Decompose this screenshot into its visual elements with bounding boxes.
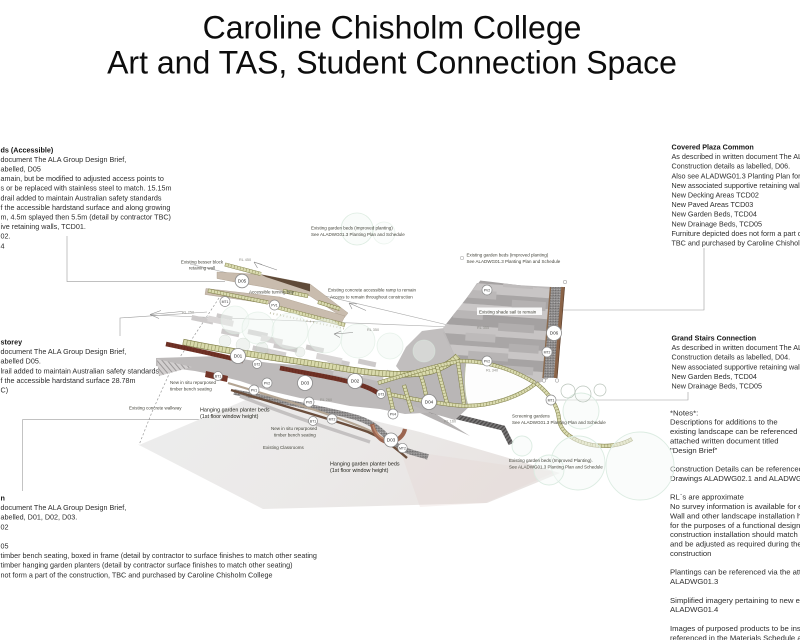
svg-text:ds (Accessible): ds (Accessible) bbox=[1, 145, 54, 154]
svg-text:not form a part of the constru: not form a part of the construction, TBC… bbox=[1, 570, 273, 579]
svg-text:PV5: PV5 bbox=[306, 400, 313, 404]
svg-text:Construction Details can be re: Construction Details can be referenced i… bbox=[670, 465, 800, 474]
svg-text:New Drainage Beds, TCD05: New Drainage Beds, TCD05 bbox=[672, 219, 763, 228]
svg-text:PV4: PV4 bbox=[390, 412, 397, 416]
svg-text:abelled D05.: abelled D05. bbox=[1, 357, 41, 366]
svg-text:abelled, D01, D02, D03.: abelled, D01, D02, D03. bbox=[1, 513, 78, 522]
svg-text:D03: D03 bbox=[301, 381, 310, 386]
svg-text:Art and TAS, Student Connectio: Art and TAS, Student Connection Space bbox=[107, 45, 677, 81]
svg-text:Images of purposed products to: Images of purposed products to be instal… bbox=[670, 624, 800, 633]
svg-text:document The ALA Group Design: document The ALA Group Design Brief, bbox=[1, 503, 127, 512]
svg-text:timber bench seating, boxed in: timber bench seating, boxed in frame (de… bbox=[1, 551, 317, 560]
svg-text:Existing besser block: Existing besser block bbox=[181, 260, 224, 265]
svg-text:Construction details as labell: Construction details as labelled, D04. bbox=[672, 353, 791, 362]
svg-text:existing landscape can be refe: existing landscape can be referenced in … bbox=[670, 427, 800, 436]
svg-text:BT1: BT1 bbox=[215, 374, 221, 378]
svg-text:m, 4.5m splayed then 5.5m (det: m, 4.5m splayed then 5.5m (detail by con… bbox=[1, 213, 171, 222]
svg-text:Existing shade sail to remain: Existing shade sail to remain bbox=[479, 310, 537, 315]
svg-text:Access to remain throughout co: Access to remain throughout construction bbox=[330, 295, 413, 300]
svg-text:Simplified imagery pertaining: Simplified imagery pertaining to new ele… bbox=[670, 596, 800, 605]
svg-text:MT2: MT2 bbox=[399, 446, 406, 450]
svg-text:Existing garden beds (improved: Existing garden beds (improved planting) bbox=[311, 226, 393, 231]
svg-text:Wall and other landscape insta: Wall and other landscape installation he… bbox=[670, 511, 800, 520]
svg-text:D04: D04 bbox=[425, 400, 434, 405]
svg-text:New Garden Beds, TCD04: New Garden Beds, TCD04 bbox=[672, 210, 757, 219]
svg-text:PV2: PV2 bbox=[484, 288, 491, 292]
svg-text:f the accessible hardstand sur: f the accessible hardstand surface 28.78… bbox=[1, 376, 136, 385]
svg-text:construction: construction bbox=[670, 549, 711, 558]
svg-text:05: 05 bbox=[1, 542, 9, 551]
svg-text:retaining wall: retaining wall bbox=[189, 266, 215, 271]
svg-text:See ALADWG01.3 Planting Plan a: See ALADWG01.3 Planting Plan and Schedul… bbox=[512, 420, 606, 425]
svg-text:abelled, D05: abelled, D05 bbox=[1, 165, 41, 174]
svg-text:ALADWG01.3: ALADWG01.3 bbox=[670, 577, 718, 586]
svg-text:Hanging garden planter beds: Hanging garden planter beds bbox=[330, 462, 400, 468]
svg-text:Grand Stairs Connection: Grand Stairs Connection bbox=[672, 334, 757, 343]
svg-text:Also see ALADWG01.3 Planting P: Also see ALADWG01.3 Planting Plan for pl… bbox=[672, 171, 800, 180]
svg-text:PV2: PV2 bbox=[264, 381, 271, 385]
svg-text:D01: D01 bbox=[234, 354, 243, 359]
svg-text:(1st floor window height): (1st floor window height) bbox=[200, 414, 259, 420]
svg-text:Existing Classrooms: Existing Classrooms bbox=[263, 445, 305, 450]
svg-text:D03: D03 bbox=[387, 438, 396, 443]
svg-text:Existing garden beds (improved: Existing garden beds (improved planting) bbox=[467, 253, 549, 258]
svg-text:No survey information is avail: No survey information is available for e… bbox=[670, 502, 800, 511]
svg-text:Hanging garden planter beds: Hanging garden planter beds bbox=[200, 408, 270, 414]
svg-text:GT2: GT2 bbox=[254, 362, 261, 366]
svg-text:PV2: PV2 bbox=[484, 359, 491, 363]
svg-text:D05: D05 bbox=[238, 279, 247, 284]
svg-text:TBC and purchased by Caroline: TBC and purchased by Caroline Chisholm C… bbox=[672, 239, 800, 248]
svg-text:As described in written docume: As described in written document The ALA… bbox=[672, 152, 800, 161]
svg-text:RL 250: RL 250 bbox=[182, 311, 194, 315]
svg-text:lrail added to maintain Austra: lrail added to maintain Australian safet… bbox=[1, 366, 160, 375]
svg-text:Descriptions for additions to: Descriptions for additions to the bbox=[670, 418, 778, 427]
svg-text:Existing concrete accessible r: Existing concrete accessible ramp to rem… bbox=[328, 288, 417, 293]
svg-text:ive retaining walls, TCD01.: ive retaining walls, TCD01. bbox=[1, 222, 86, 231]
svg-text:*Notes*:: *Notes*: bbox=[670, 408, 698, 417]
svg-text:New associated supportive reta: New associated supportive retaining wall… bbox=[672, 181, 800, 190]
svg-text:New Decking Areas TCD02: New Decking Areas TCD02 bbox=[672, 191, 759, 200]
svg-text:New Paved Areas TCD03: New Paved Areas TCD03 bbox=[672, 200, 754, 209]
svg-text:Accessible turning bay: Accessible turning bay bbox=[249, 290, 295, 295]
svg-text:attached written document titl: attached written document titled bbox=[670, 436, 779, 445]
svg-text:timber bench seating: timber bench seating bbox=[170, 387, 212, 392]
svg-text:As described in written docume: As described in written document The ALA… bbox=[672, 343, 800, 352]
svg-text:See ALADWG01.3 Planting Plan a: See ALADWG01.3 Planting Plan and Schedul… bbox=[467, 259, 561, 264]
svg-text:Covered Plaza Common: Covered Plaza Common bbox=[672, 143, 754, 152]
svg-text:(1st floor window height): (1st floor window height) bbox=[330, 468, 389, 474]
svg-text:Caroline Chisholm College: Caroline Chisholm College bbox=[203, 10, 582, 46]
svg-text:New in situ repurposed: New in situ repurposed bbox=[271, 426, 318, 431]
svg-text:RL 450: RL 450 bbox=[239, 258, 251, 262]
svg-text:s or be replaced with stainles: s or be replaced with stainless steel to… bbox=[1, 184, 172, 193]
svg-text:RL 340: RL 340 bbox=[486, 369, 498, 373]
svg-text:document The ALA Group Design: document The ALA Group Design Brief, bbox=[1, 347, 127, 356]
svg-text:02.: 02. bbox=[1, 232, 11, 241]
svg-text:ALADWG01.4: ALADWG01.4 bbox=[670, 605, 719, 614]
svg-text:Construction details as labell: Construction details as labelled, D06. bbox=[672, 162, 791, 171]
svg-text:RL 160: RL 160 bbox=[444, 420, 456, 424]
svg-text:storey: storey bbox=[1, 338, 23, 347]
svg-text:f the accessible hardstand sur: f the accessible hardstand surface and a… bbox=[1, 203, 171, 212]
svg-text:GT3: GT3 bbox=[378, 392, 385, 396]
svg-text:for the purposes of a function: for the purposes of a functional design … bbox=[670, 521, 800, 530]
svg-text:PV1: PV1 bbox=[251, 388, 258, 392]
svg-text:timber bench seating: timber bench seating bbox=[274, 433, 316, 438]
svg-text:Plantings can be referenced vi: Plantings can be referenced via the atta… bbox=[670, 568, 800, 577]
svg-text:02: 02 bbox=[1, 522, 9, 531]
svg-text:C): C) bbox=[1, 386, 9, 395]
svg-text:"Design Brief": "Design Brief" bbox=[670, 446, 718, 455]
svg-text:RL 350: RL 350 bbox=[367, 328, 379, 332]
svg-text:Furniture depicted does not fo: Furniture depicted does not form a part … bbox=[672, 229, 800, 238]
svg-text:See ALADWG01.3 Planting Plan a: See ALADWG01.3 Planting Plan and Schedul… bbox=[509, 465, 603, 470]
svg-text:referenced in the Materials Sc: referenced in the Materials Schedule and… bbox=[670, 633, 800, 640]
svg-text:New Drainage Beds, TCD05: New Drainage Beds, TCD05 bbox=[672, 382, 763, 391]
svg-text:drail added to maintain Austra: drail added to maintain Australian safet… bbox=[1, 193, 162, 202]
svg-text:New in situ repurposed: New in situ repurposed bbox=[170, 380, 217, 385]
svg-text:MT2: MT2 bbox=[329, 417, 336, 421]
svg-text:4: 4 bbox=[1, 241, 5, 250]
svg-text:and be adjusted as required du: and be adjusted as required during the bbox=[670, 540, 800, 549]
svg-text:Drawings ALADWG02.1 and ALADWG: Drawings ALADWG02.1 and ALADWG02.2 bbox=[670, 474, 800, 483]
svg-text:amain, but be modified to adju: amain, but be modified to adjusted acces… bbox=[1, 174, 164, 183]
svg-text:RL`s are approximate: RL`s are approximate bbox=[670, 493, 744, 502]
svg-text:PV1: PV1 bbox=[271, 303, 278, 307]
svg-text:MT1: MT1 bbox=[222, 300, 229, 304]
svg-text:RL 355: RL 355 bbox=[477, 326, 489, 330]
svg-text:See ALADWG01.3 Planting Plan a: See ALADWG01.3 Planting Plan and Schedul… bbox=[311, 232, 405, 237]
svg-text:D02: D02 bbox=[351, 379, 360, 384]
svg-text:BT1: BT1 bbox=[310, 419, 316, 423]
svg-text:Existing garden beds (Improved: Existing garden beds (Improved Planting)… bbox=[509, 458, 593, 463]
svg-text:document The ALA Group Design: document The ALA Group Design Brief, bbox=[1, 155, 127, 164]
svg-text:construction installation shou: construction installation should match i… bbox=[670, 530, 800, 539]
svg-text:MT2: MT2 bbox=[544, 350, 551, 354]
svg-text:Screening gardens: Screening gardens bbox=[512, 414, 551, 419]
svg-text:Existing concrete walkway: Existing concrete walkway bbox=[129, 406, 182, 411]
svg-text:New associated supportive reta: New associated supportive retaining wall… bbox=[672, 362, 800, 371]
svg-text:timber hanging garden planters: timber hanging garden planters (detail b… bbox=[1, 561, 293, 570]
svg-text:New Garden Beds, TCD04: New Garden Beds, TCD04 bbox=[672, 372, 757, 381]
svg-text:RL 260: RL 260 bbox=[320, 398, 332, 402]
svg-text:n: n bbox=[1, 494, 5, 503]
svg-text:MT1: MT1 bbox=[548, 398, 555, 402]
svg-text:D06: D06 bbox=[550, 331, 559, 336]
